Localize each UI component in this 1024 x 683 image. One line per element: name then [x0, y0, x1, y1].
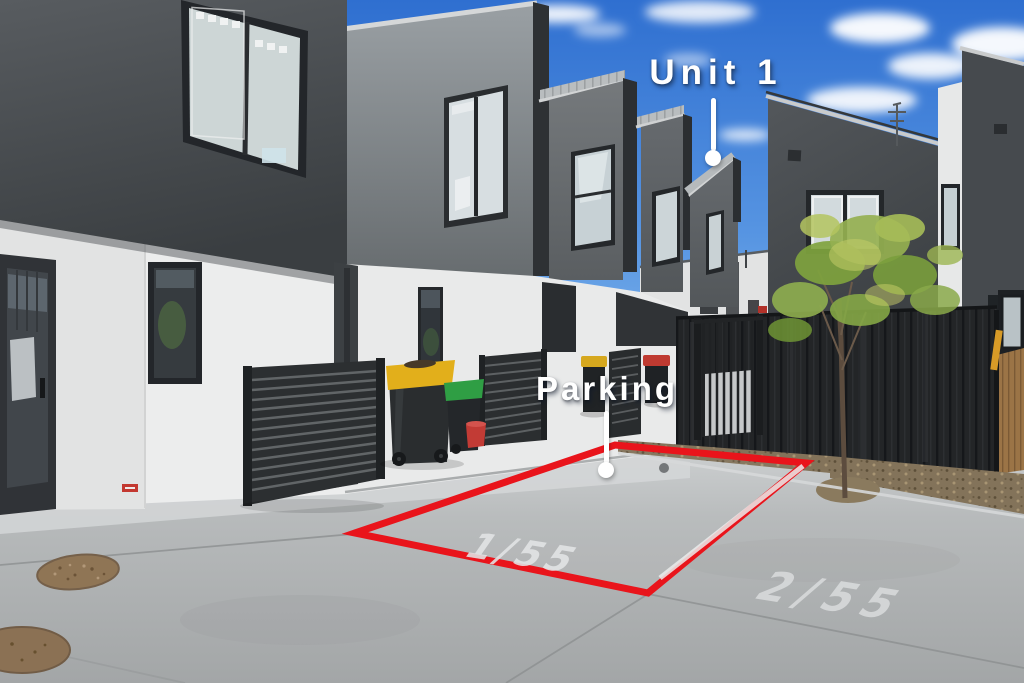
townhouse-unit-2: [343, 2, 549, 278]
bin-yellow-lid: [386, 359, 455, 466]
entry-door: [0, 254, 56, 515]
townhouse-unit-3: [539, 70, 637, 280]
red-marker-object: [758, 306, 767, 313]
unit-window: [571, 144, 615, 251]
stairwell-window: [941, 184, 960, 250]
unit-window: [652, 186, 680, 267]
red-bucket: [466, 421, 486, 448]
unit-1-label: Unit 1: [596, 53, 836, 93]
photo-scene: 1/55 2/55: [0, 0, 1024, 683]
unit-1-marker-dot: [705, 150, 721, 166]
parking-marker-dot: [598, 462, 614, 478]
screen-shadow: [240, 499, 384, 513]
wall-vent: [788, 150, 802, 162]
entry-recess: [542, 282, 576, 352]
unit-window: [706, 210, 724, 275]
parking-leader-line: [604, 411, 609, 464]
timber-fence: [997, 348, 1024, 474]
unit-window: [444, 85, 508, 228]
downstairs-window: [148, 262, 202, 384]
property-photo: 1/55 2/55 Unit 1 Parking: [0, 0, 1024, 683]
wall-vent: [994, 124, 1007, 134]
door-handle: [40, 378, 45, 398]
unit-1-leader-line: [711, 98, 716, 151]
parking-label: Parking: [487, 370, 727, 408]
